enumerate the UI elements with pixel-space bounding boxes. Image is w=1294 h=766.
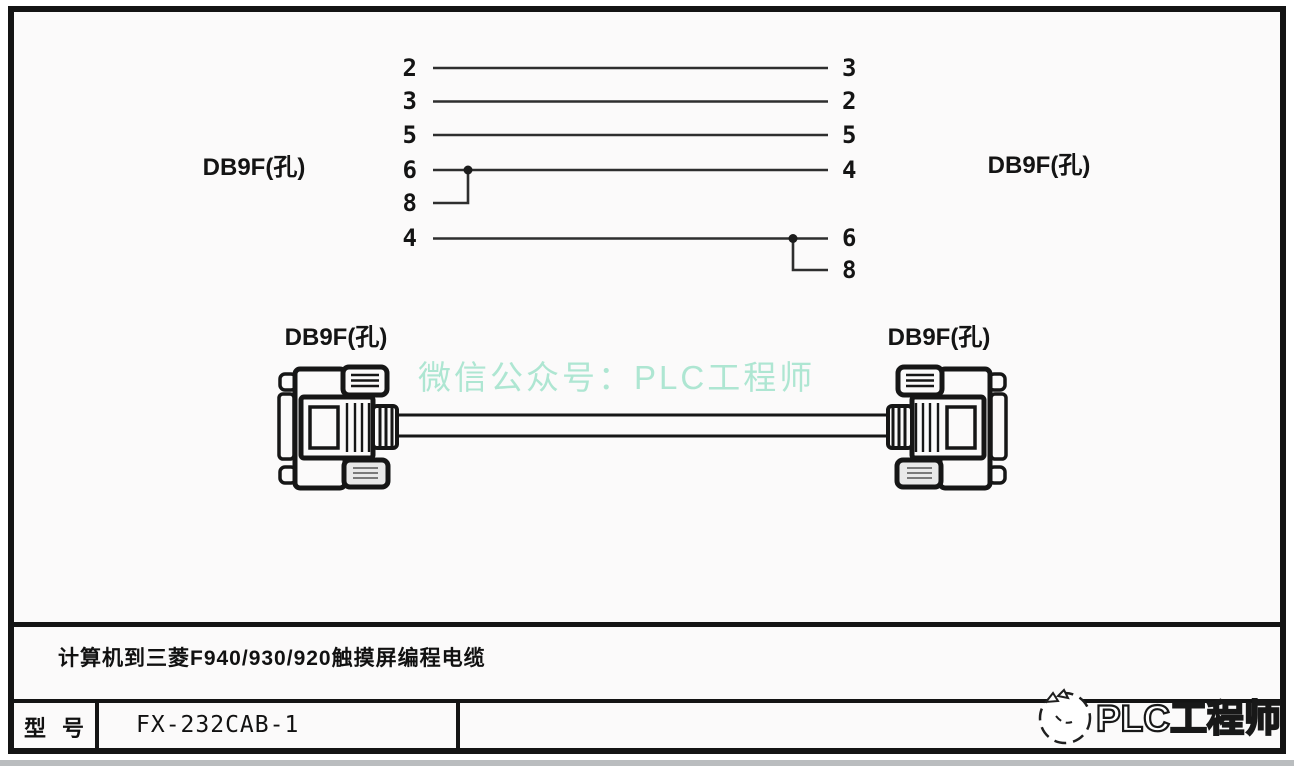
watermark-center-text: 微信公众号：PLC工程师: [418, 358, 815, 398]
model-cell-divider-2: [456, 699, 460, 748]
page: 微信公众号：PLC工程师: [0, 0, 1294, 766]
pin-label-left-2: 3: [385, 88, 417, 114]
pin-label-right-5: 6: [842, 225, 874, 251]
cable-description-text: 计算机到三菱F940/930/920触摸屏编程电缆: [58, 645, 486, 673]
title-block-divider: [14, 622, 1280, 627]
pin-label-right-2: 2: [842, 88, 874, 114]
connector-label-top-left: DB9F(孔): [188, 154, 320, 182]
pin-label-left-5: 8: [385, 190, 417, 216]
model-cell-divider-1: [95, 699, 99, 748]
pin-label-right-3: 5: [842, 122, 874, 148]
connector-label-cable-left: DB9F(孔): [270, 324, 402, 352]
pin-label-left-3: 5: [385, 122, 417, 148]
pin-label-right-6: 8: [842, 257, 874, 283]
pin-label-left-1: 2: [385, 55, 417, 81]
pin-label-right-4: 4: [842, 157, 874, 183]
connector-label-cable-right: DB9F(孔): [873, 324, 1005, 352]
plc-logo-icon: [1028, 684, 1098, 750]
pin-label-right-1: 3: [842, 55, 874, 81]
page-bottom-strip: [0, 760, 1294, 766]
pin-label-left-4: 6: [385, 157, 417, 183]
pin-label-left-6: 4: [385, 225, 417, 251]
model-number-value: FX-232CAB-1: [136, 712, 299, 738]
watermark-corner-text: PLC工程师: [1096, 698, 1281, 740]
model-label: 型 号: [16, 711, 92, 743]
connector-label-top-right: DB9F(孔): [973, 152, 1105, 180]
